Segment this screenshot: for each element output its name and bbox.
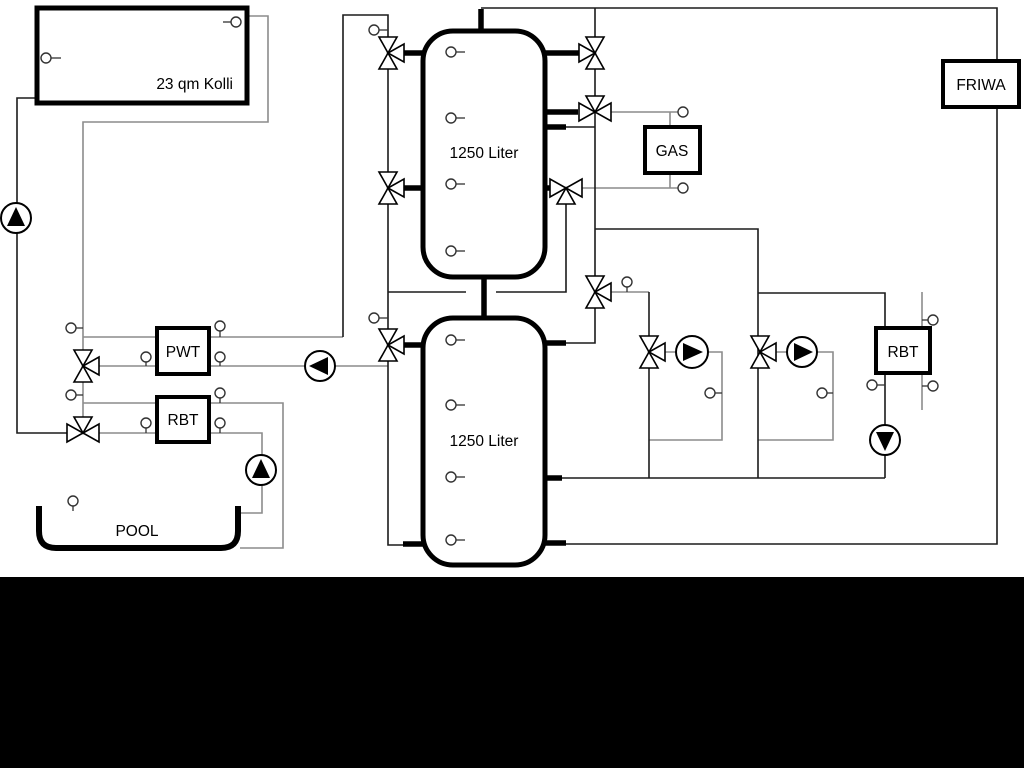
pwt-label: PWT [166, 344, 201, 361]
bottom-mask [0, 577, 1024, 768]
rbt-right-pump-icon [870, 425, 900, 455]
sensor-gas-top [678, 107, 688, 117]
pwt-pump-icon [305, 351, 335, 381]
heating-pump-2-icon [787, 337, 817, 367]
tank1-label: 1250 Liter [450, 145, 519, 162]
collector-label: 23 qm Kolli [156, 76, 233, 93]
rbt-right-label: RBT [888, 344, 920, 361]
tank2-label: 1250 Liter [450, 433, 519, 450]
gas-label: GAS [656, 143, 689, 160]
friwa-label: FRIWA [956, 77, 1006, 94]
sensor-gas-bottom [678, 183, 688, 193]
pool-pump-icon [246, 455, 276, 485]
rbt-left-label: RBT [168, 412, 200, 429]
pool-label: POOL [115, 523, 158, 540]
schematic-canvas: 23 qm Kolli 1250 Liter 1250 Liter PWT RB… [0, 0, 1024, 768]
hydraulic-schematic: 23 qm Kolli 1250 Liter 1250 Liter PWT RB… [0, 0, 1024, 768]
solar-pump-icon [1, 203, 31, 233]
heating-pump-1-icon [676, 336, 708, 368]
